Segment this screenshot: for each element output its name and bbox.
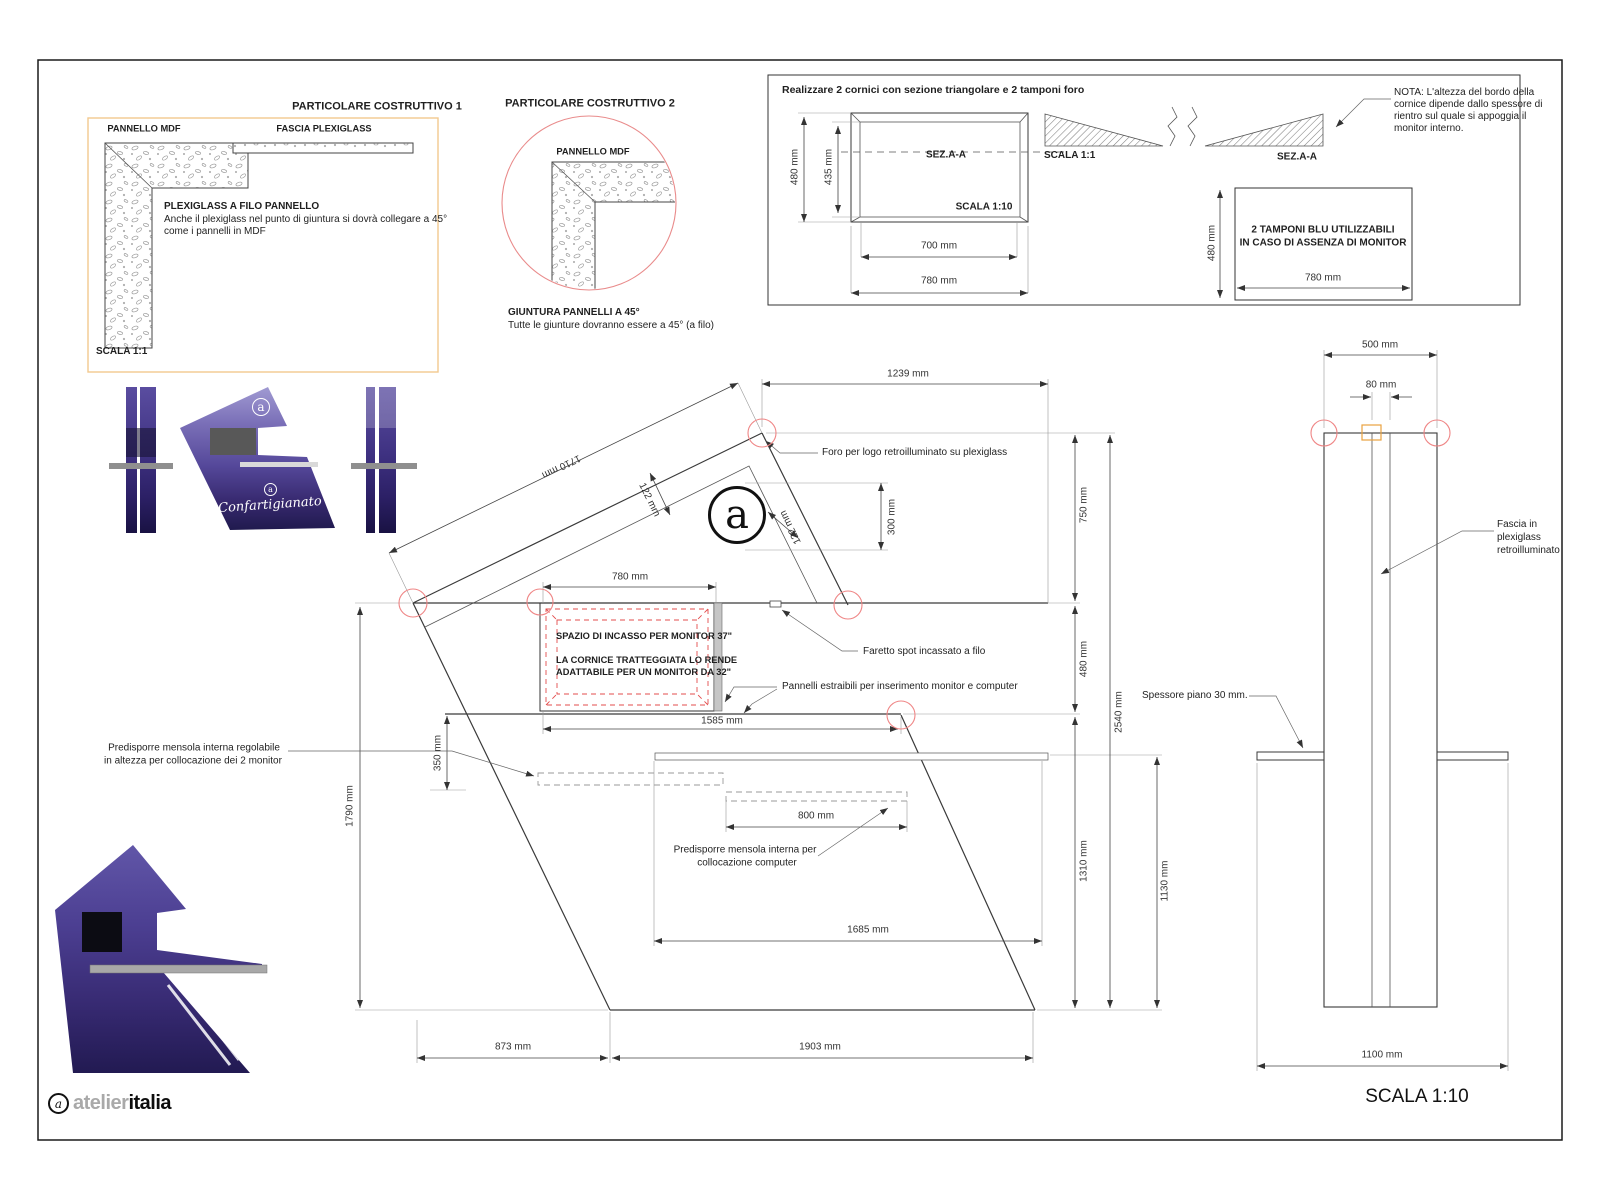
dim-cornici-780: 780 mm [921, 275, 957, 287]
dim-480: 480 mm [1078, 641, 1090, 677]
tamponi-line2: IN CASO DI ASSENZA DI MONITOR [1240, 237, 1407, 249]
detail1-drawing [88, 118, 438, 372]
cornici-nota-line1: NOTA: L'altezza del bordo della [1394, 87, 1534, 99]
dim-80: 80 mm [1366, 379, 1397, 391]
detail2-mdf-label: PANNELLO MDF [556, 147, 629, 158]
dim-1239: 1239 mm [887, 368, 929, 380]
detail1-note-title: PLEXIGLASS A FILO PANNELLO [164, 201, 319, 213]
render-perspective [55, 842, 267, 1073]
cornici-title: Realizzare 2 cornici con sezione triango… [782, 84, 1084, 96]
note-pannelli: Pannelli estraibili per inserimento moni… [782, 681, 1018, 693]
note-foro: Foro per logo retroilluminato su plexigl… [822, 447, 1007, 459]
brand-italia: italia [128, 1092, 171, 1114]
note-monitor-line1: SPAZIO DI INCASSO PER MONITOR 37" [556, 631, 732, 642]
detail1-fascia-label: FASCIA PLEXIGLASS [276, 124, 371, 135]
detail1-scale: SCALA 1:1 [96, 346, 147, 358]
cornici-section-label: SEZ.A-A [926, 149, 966, 161]
atelier-a-logo-render-small: a [264, 483, 277, 496]
cornici-nota-line3: rientro sul quale si appoggia il [1394, 111, 1526, 123]
dim-800: 800 mm [798, 810, 834, 822]
detail2-drawing [502, 116, 700, 300]
dim-350: 350 mm [432, 735, 444, 771]
cornici-scale-front: SCALA 1:10 [956, 201, 1013, 213]
dim-tamponi-780: 780 mm [1305, 272, 1341, 284]
detail2-note-title: GIUNTURA PANNELLI A 45° [508, 307, 640, 319]
dim-cornici-435: 435 mm [823, 149, 835, 185]
dim-1585: 1585 mm [701, 715, 743, 727]
cornici-nota-line4: monitor interno. [1394, 123, 1463, 135]
note-fascia-line3: retroilluminato [1497, 545, 1560, 557]
detail1-mdf-label: PANNELLO MDF [107, 124, 180, 135]
dim-cornici-700: 700 mm [921, 240, 957, 252]
detail1-note-line2: come i pannelli in MDF [164, 226, 266, 238]
detail2-note-line1: Tutte le giunture dovranno essere a 45° … [508, 320, 714, 332]
dim-750: 750 mm [1078, 487, 1090, 523]
note-mensola-monitor-line1: Predisporre mensola interna regolabile [108, 742, 280, 754]
note-monitor-line2: LA CORNICE TRATTEGGIATA LO RENDE [556, 655, 737, 666]
dim-1790: 1790 mm [344, 785, 356, 827]
note-mensola-computer-line2: collocazione computer [697, 857, 797, 869]
dim-1310: 1310 mm [1078, 840, 1090, 882]
cornici-section-label2: SEZ.A-A [1277, 151, 1317, 163]
dim-780-monitor: 780 mm [612, 571, 648, 583]
atelier-italia-logo: a atelieritalia [48, 1092, 171, 1115]
note-mensola-computer-line1: Predisporre mensola interna per [674, 844, 817, 856]
note-mensola-monitor-line2: in altezza per collocazione dei 2 monito… [104, 755, 282, 767]
atelier-a-logo-render: a [252, 398, 270, 416]
detail1-title: PARTICOLARE COSTRUTTIVO 1 [292, 101, 462, 114]
atelier-a-logo-plan: a [708, 486, 766, 544]
tamponi-line1: 2 TAMPONI BLU UTILIZZABILI [1251, 224, 1394, 236]
dim-1100: 1100 mm [1362, 1049, 1403, 1061]
note-fascia-line1: Fascia in [1497, 519, 1537, 531]
dim-873: 873 mm [495, 1041, 531, 1053]
plan-drawing [288, 379, 1303, 1063]
brand-atelier: atelier [73, 1092, 128, 1114]
detail1-note-line1: Anche il plexiglass nel punto di giuntur… [164, 214, 447, 226]
note-fascia-line2: plexiglass [1497, 532, 1541, 544]
dim-300: 300 mm [886, 499, 898, 535]
drawing-sheet: PARTICOLARE COSTRUTTIVO 1 PANNELLO MDF F… [0, 0, 1600, 1200]
brand-text: atelieritalia [73, 1092, 171, 1115]
dim-2540: 2540 mm [1113, 691, 1125, 733]
sheet-scale: SCALA 1:10 [1365, 1086, 1469, 1108]
note-monitor-line3: ADATTABILE PER UN MONITOR DA 32" [556, 667, 731, 678]
dim-tamponi-480: 480 mm [1206, 225, 1218, 261]
dim-1130: 1130 mm [1159, 861, 1171, 902]
dim-cornici-480: 480 mm [789, 149, 801, 185]
dim-1903: 1903 mm [799, 1041, 841, 1053]
note-spessore: Spessore piano 30 mm. [1142, 690, 1248, 702]
note-faretto: Faretto spot incassato a filo [863, 646, 985, 658]
dim-500: 500 mm [1362, 339, 1398, 351]
cornici-nota-line2: cornice dipende dallo spessore di [1394, 99, 1542, 111]
side-view-drawing [1257, 350, 1508, 1071]
atelier-a-icon: a [48, 1093, 69, 1114]
cornici-scale-section: SCALA 1:1 [1044, 150, 1095, 162]
detail2-title: PARTICOLARE COSTRUTTIVO 2 [505, 98, 675, 111]
dim-1685: 1685 mm [847, 924, 889, 936]
